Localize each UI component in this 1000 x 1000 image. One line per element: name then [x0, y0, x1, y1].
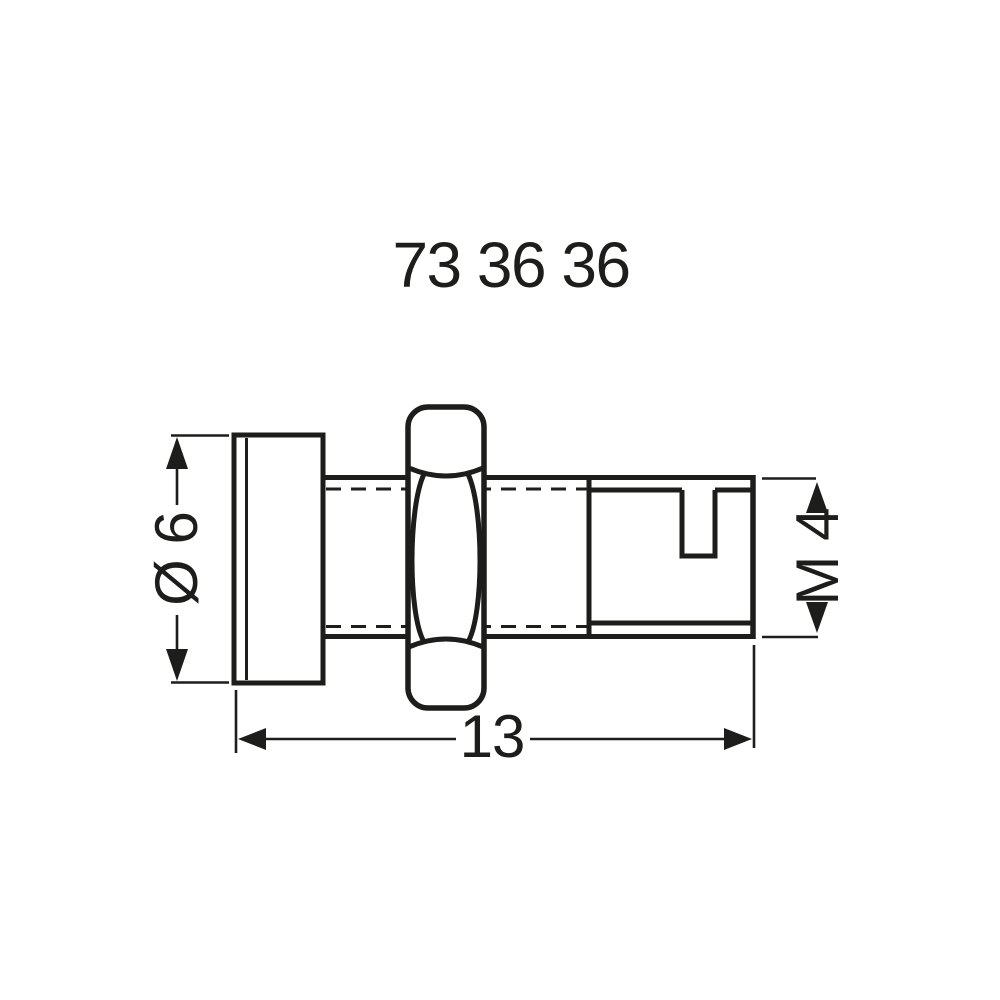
arrowhead-down [806, 602, 828, 633]
slot-outline [682, 490, 715, 556]
dimension-length-label: 13 [460, 703, 525, 770]
sleeve-body [589, 475, 753, 639]
drawing-page: 73 36 36 [0, 0, 1000, 1000]
technical-drawing: 73 36 36 [0, 0, 1000, 1000]
part-outline [234, 407, 753, 708]
arrowhead-up [806, 482, 828, 513]
arrowhead-down [166, 649, 188, 681]
nut-outline [408, 407, 484, 708]
front-flange [234, 435, 323, 683]
hex-nut [408, 407, 484, 708]
dimension-diameter-label: Ø 6 [143, 512, 210, 606]
dimension-diameter: Ø 6 [143, 436, 229, 683]
arrowhead-up [166, 437, 188, 469]
dimension-thread-label: M 4 [784, 508, 851, 605]
dimension-thread: M 4 [762, 479, 851, 638]
arrowhead-right [724, 728, 752, 750]
arrowhead-left [238, 728, 266, 750]
product-number: 73 36 36 [392, 229, 629, 301]
